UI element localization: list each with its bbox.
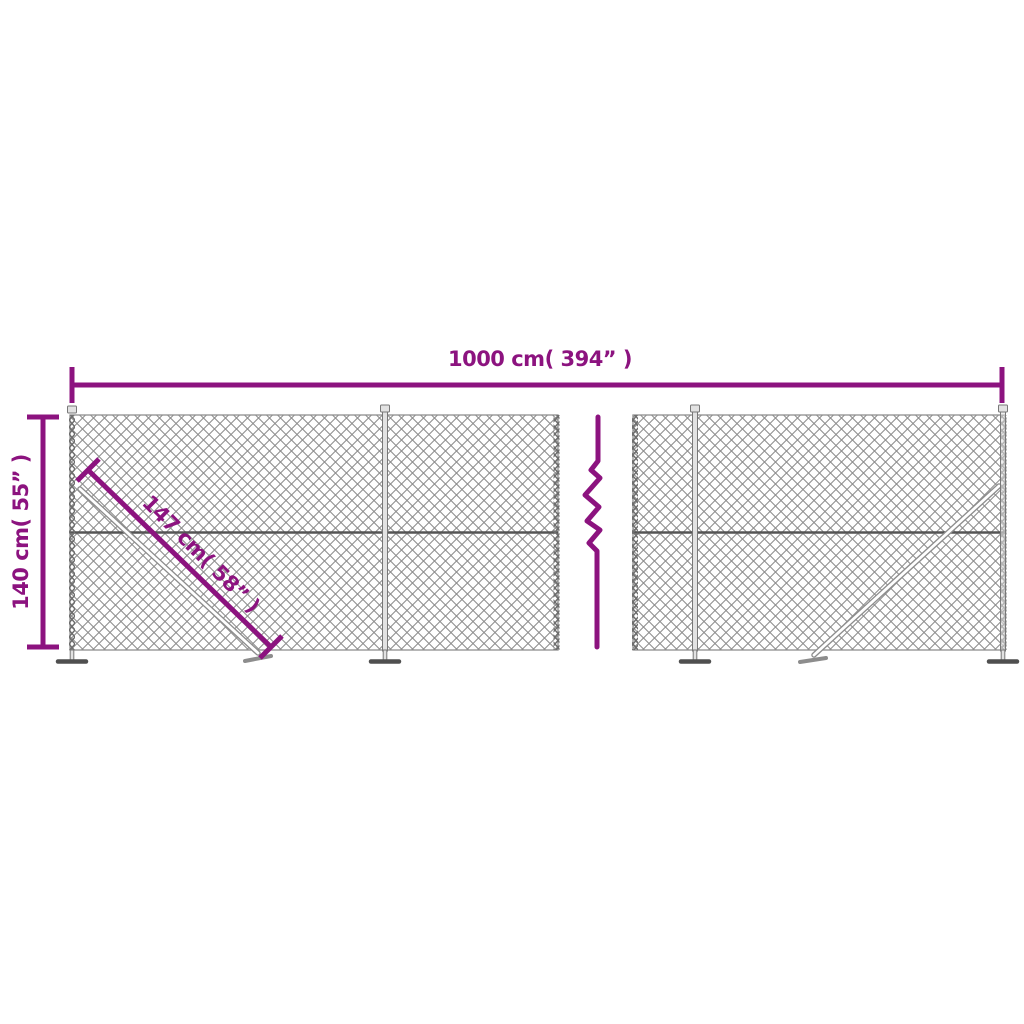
fence-dimension-diagram: 1000 cm( 394” ) 140 cm( 55” ) 147 cm( 58… bbox=[0, 0, 1024, 1024]
brace-foot bbox=[245, 656, 271, 661]
flange-foot-icon bbox=[681, 650, 709, 662]
flange-foot-icon bbox=[989, 650, 1017, 662]
brace-foot bbox=[800, 658, 826, 662]
post-cap bbox=[691, 405, 700, 412]
height-dimension-label: 140 cm( 55” ) bbox=[9, 454, 33, 610]
braided-edge bbox=[632, 415, 638, 650]
width-dimension bbox=[72, 367, 1002, 403]
braided-edge bbox=[554, 415, 560, 650]
fence-panel-left bbox=[58, 405, 560, 662]
post-cap bbox=[381, 405, 390, 412]
post-cap bbox=[68, 406, 77, 413]
braided-edge bbox=[69, 415, 75, 650]
fence-panel-right bbox=[632, 405, 1017, 662]
flange-foot-icon bbox=[371, 650, 399, 662]
width-dimension-label: 1000 cm( 394” ) bbox=[448, 347, 632, 371]
break-zigzag-icon bbox=[585, 417, 600, 647]
post-cap bbox=[999, 405, 1008, 412]
flange-foot-icon bbox=[58, 650, 86, 662]
